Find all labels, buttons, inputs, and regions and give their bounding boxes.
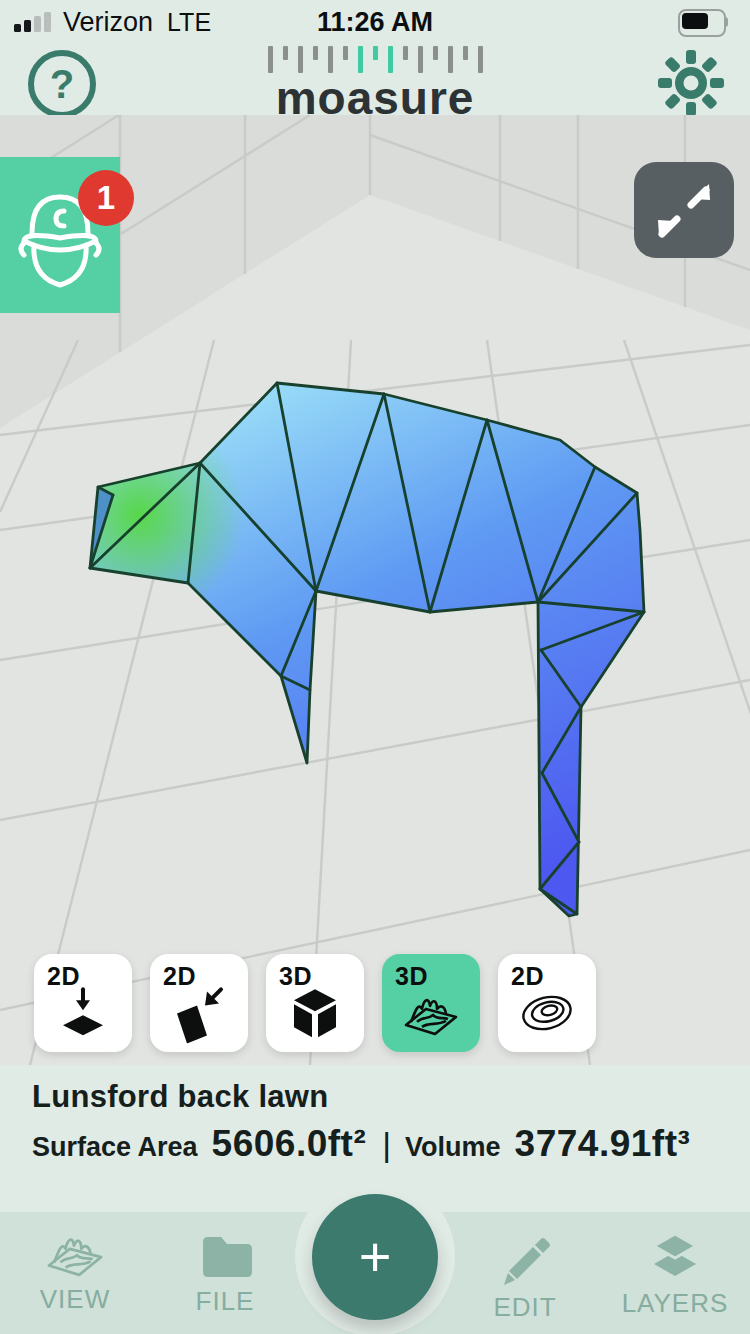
view-mode-toolbar: 2D 2D xyxy=(34,954,596,1052)
gear-icon xyxy=(656,48,726,118)
app-screen: Verizon LTE 11:26 AM moasure ? xyxy=(0,0,750,1334)
surface-area-value: 5606.0ft² xyxy=(212,1123,367,1165)
battery-icon xyxy=(678,9,732,35)
nav-file-tab[interactable]: FILE xyxy=(165,1212,285,1317)
ruler-ticks-icon xyxy=(268,46,483,74)
add-measurement-button[interactable]: + xyxy=(312,1194,438,1320)
mode-2d-plan-button[interactable]: 2D xyxy=(34,954,132,1052)
measurement-title: Lunsford back lawn xyxy=(32,1079,329,1115)
measurement-3d-viewport[interactable]: 1 2D 2D xyxy=(0,115,750,1065)
measurement-metrics: Surface Area 5606.0ft² | Volume 3774.91f… xyxy=(32,1123,732,1165)
cube-icon xyxy=(287,985,343,1041)
app-logo: moasure xyxy=(0,44,750,121)
status-bar: Verizon LTE 11:26 AM xyxy=(0,0,750,44)
nav-edit-tab[interactable]: EDIT xyxy=(465,1212,585,1323)
metrics-separator: | xyxy=(382,1125,391,1164)
pencil-icon xyxy=(496,1228,554,1286)
mode-2d-contour-button[interactable]: 2D xyxy=(498,954,596,1052)
mode-3d-cube-button[interactable]: 3D xyxy=(266,954,364,1052)
header: moasure ? xyxy=(0,44,750,115)
nav-view-tab[interactable]: VIEW xyxy=(15,1212,135,1315)
nav-layers-tab[interactable]: LAYERS xyxy=(615,1212,735,1319)
expand-arrows-icon xyxy=(634,162,734,258)
surface-icon xyxy=(402,989,460,1037)
volume-label: Volume xyxy=(405,1132,501,1163)
layers-icon xyxy=(646,1228,704,1282)
settings-button[interactable] xyxy=(656,48,726,118)
plan-flatten-icon xyxy=(55,985,111,1041)
mode-2d-side-button[interactable]: 2D xyxy=(150,954,248,1052)
surface-area-label: Surface Area xyxy=(32,1132,198,1163)
clock: 11:26 AM xyxy=(0,7,750,38)
volume-value: 3774.91ft³ xyxy=(515,1123,691,1165)
side-flatten-icon xyxy=(171,983,227,1043)
mode-3d-surface-button[interactable]: 3D xyxy=(382,954,480,1052)
profile-badge[interactable]: 1 xyxy=(0,157,120,313)
contour-icon xyxy=(518,988,576,1038)
help-button[interactable]: ? xyxy=(28,50,96,118)
fullscreen-button[interactable] xyxy=(634,162,734,258)
surface-view-icon xyxy=(44,1228,106,1278)
folder-icon xyxy=(195,1228,255,1280)
notification-badge: 1 xyxy=(78,170,134,226)
